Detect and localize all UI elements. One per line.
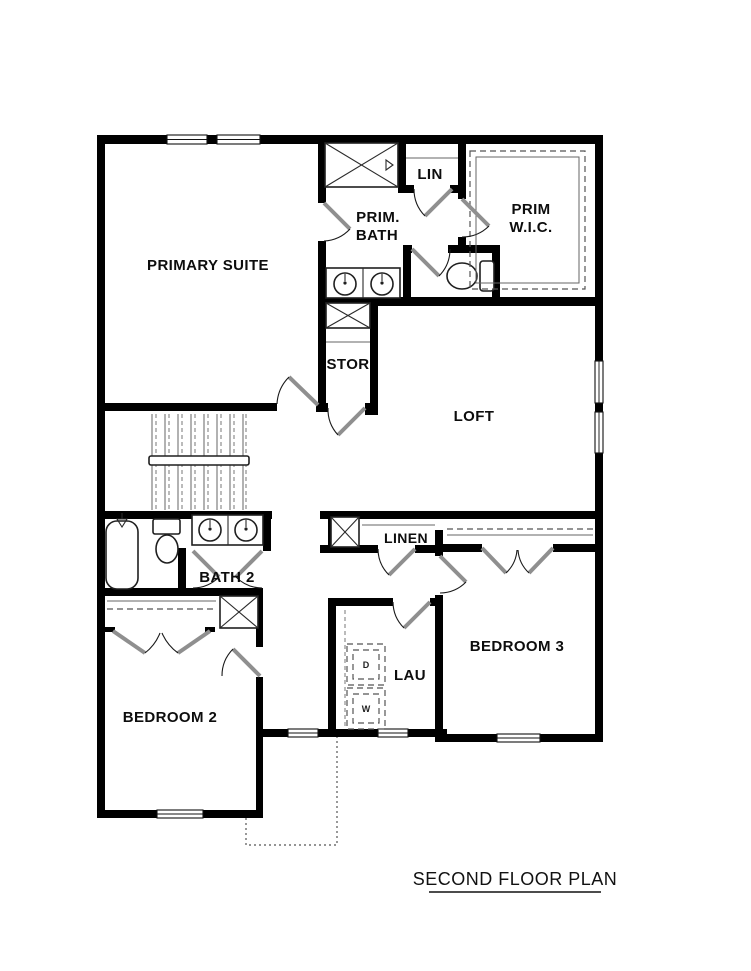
loft-label: LOFT <box>454 408 495 425</box>
bedroom2-label: BEDROOM 2 <box>123 709 217 726</box>
window <box>595 361 603 403</box>
door <box>440 556 466 593</box>
door <box>324 203 350 241</box>
door <box>162 631 210 653</box>
double-vanity-icon <box>326 268 400 298</box>
door <box>277 377 318 405</box>
chase-icon <box>331 517 359 547</box>
primary-suite-label: PRIMARY SUITE <box>147 257 269 274</box>
dryer-label: D <box>363 660 370 670</box>
door <box>414 189 452 216</box>
dryer-icon: D <box>347 644 385 685</box>
prim-bath-label-line1: PRIM. <box>356 209 400 226</box>
toilet-icon <box>153 519 180 563</box>
window <box>595 412 603 453</box>
double-vanity-icon <box>192 515 263 545</box>
stor-label: STOR <box>327 356 370 373</box>
linen-label: LINEN <box>384 530 428 546</box>
bedroom3-label: BEDROOM 3 <box>470 638 564 655</box>
door <box>328 408 365 435</box>
shower-icon <box>325 143 398 187</box>
bathtub-icon <box>106 513 138 589</box>
plan-title-text: SECOND FLOOR PLAN <box>413 869 618 889</box>
door <box>393 602 430 628</box>
window <box>378 729 408 737</box>
window <box>497 734 540 742</box>
window <box>217 135 260 144</box>
door <box>378 549 415 575</box>
door <box>518 548 553 573</box>
bath2-label: BATH 2 <box>199 569 254 586</box>
floor-plan-drawing: D W <box>0 0 751 971</box>
prim-wic-label-line2: W.I.C. <box>509 219 552 236</box>
window <box>157 810 203 818</box>
door <box>222 649 260 676</box>
lau-label: LAU <box>394 667 426 684</box>
window <box>288 729 318 737</box>
door <box>482 548 517 573</box>
staircase <box>149 414 249 510</box>
prim-bath-label-line2: BATH <box>356 227 398 244</box>
door <box>113 631 160 653</box>
lin-label: LIN <box>417 166 442 183</box>
stair-handrail <box>149 456 249 465</box>
chase-icon <box>326 303 370 328</box>
washer-label: W <box>362 704 371 714</box>
floor-plan-page: D W <box>0 0 751 971</box>
door <box>412 249 450 276</box>
window <box>167 135 207 144</box>
prim-wic-label-line1: PRIM <box>511 201 550 218</box>
chase-icon <box>220 596 258 628</box>
plan-title: SECOND FLOOR PLAN <box>413 869 618 892</box>
washer-icon: W <box>347 688 385 729</box>
